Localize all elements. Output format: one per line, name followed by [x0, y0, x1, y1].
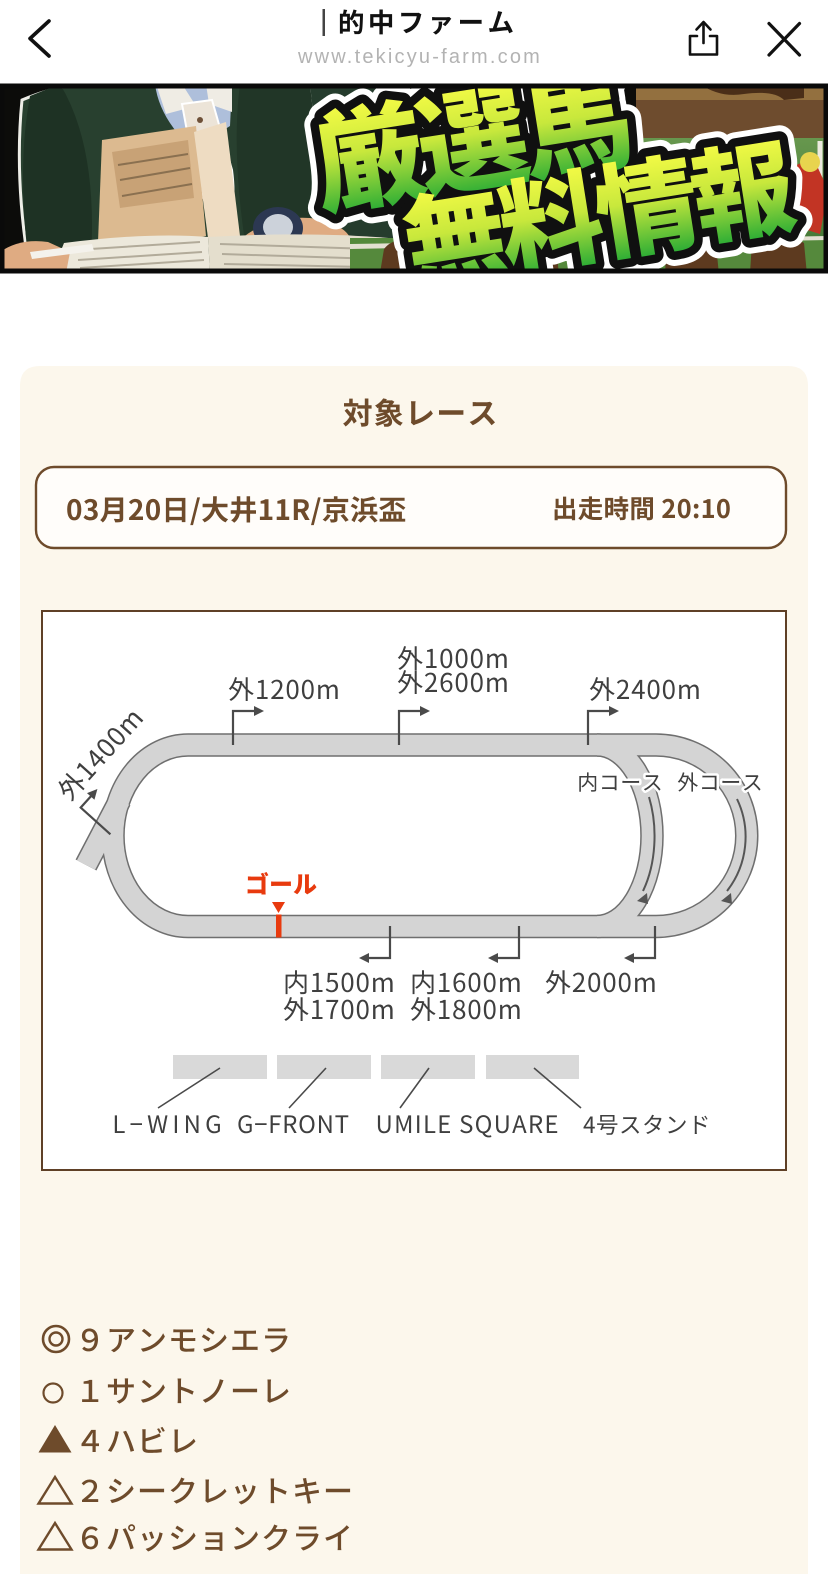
svg-text:www.tekicyu-farm.com: www.tekicyu-farm.com — [297, 46, 542, 68]
